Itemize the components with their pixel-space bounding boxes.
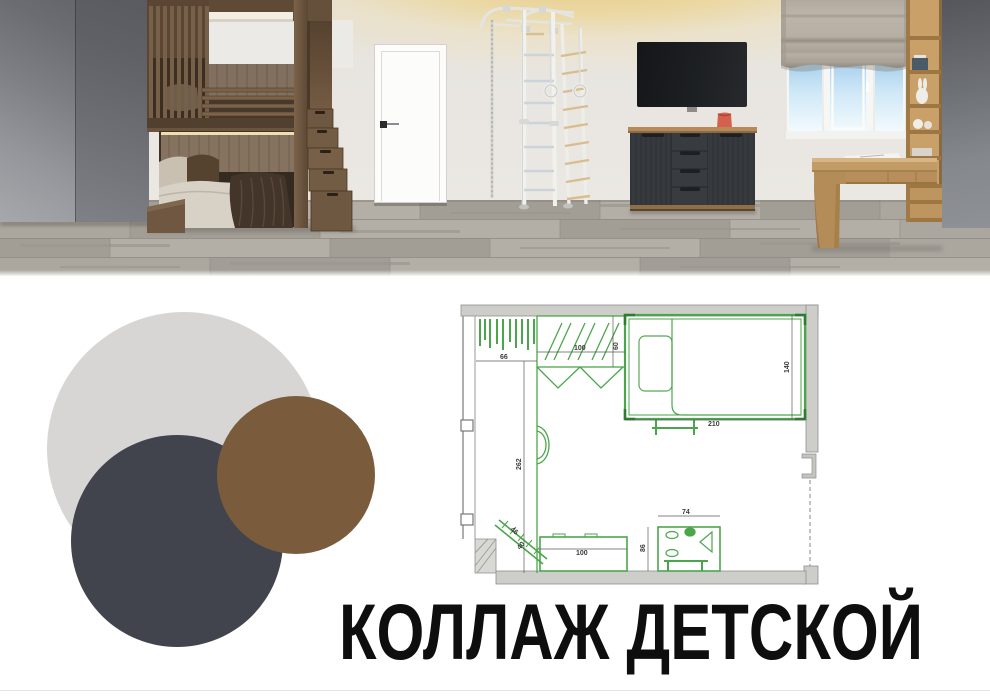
svg-text:210: 210 [708, 421, 720, 428]
svg-text:86: 86 [640, 544, 647, 552]
svg-text:262: 262 [516, 458, 523, 470]
svg-text:60: 60 [613, 342, 620, 350]
svg-text:100: 100 [574, 345, 586, 352]
svg-text:100: 100 [576, 550, 588, 557]
svg-text:66: 66 [500, 354, 508, 361]
svg-text:74: 74 [682, 509, 690, 516]
svg-text:140: 140 [784, 361, 791, 373]
